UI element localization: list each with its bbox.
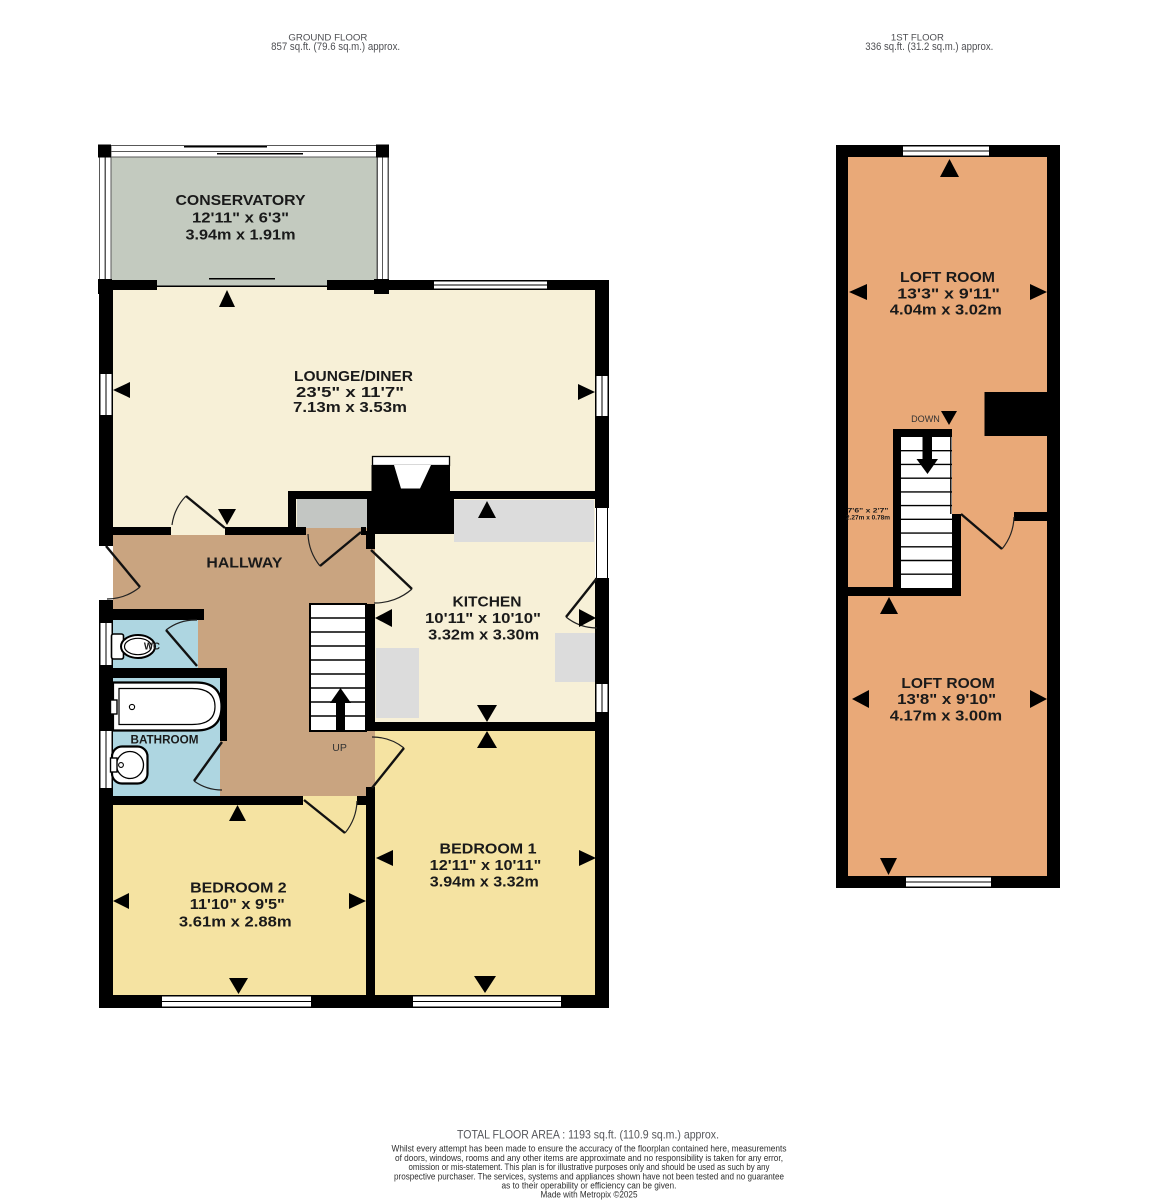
svg-text:3.94m x 1.91m: 3.94m x 1.91m — [186, 227, 296, 244]
svg-text:12'11" x 6'3": 12'11" x 6'3" — [192, 210, 289, 227]
svg-text:12'11" x 10'11": 12'11" x 10'11" — [430, 857, 542, 874]
svg-text:7.13m x 3.53m: 7.13m x 3.53m — [293, 399, 407, 416]
svg-text:11'10" x 9'5": 11'10" x 9'5" — [190, 896, 285, 913]
svg-text:3.61m x 2.88m: 3.61m x 2.88m — [179, 913, 292, 930]
svg-text:LOFT ROOM: LOFT ROOM — [901, 675, 994, 692]
svg-text:WC: WC — [144, 642, 160, 653]
svg-text:10'11" x 10'10": 10'11" x 10'10" — [425, 610, 541, 627]
svg-text:KITCHEN: KITCHEN — [453, 594, 522, 611]
svg-text:DOWN: DOWN — [911, 414, 940, 425]
svg-text:4.17m x 3.00m: 4.17m x 3.00m — [890, 707, 1002, 724]
svg-text:Made with Metropix ©2025: Made with Metropix ©2025 — [541, 1190, 638, 1200]
svg-text:13'8" x 9'10": 13'8" x 9'10" — [897, 691, 996, 708]
svg-text:336 sq.ft. (31.2 sq.m.) approx: 336 sq.ft. (31.2 sq.m.) approx. — [865, 41, 993, 53]
svg-text:BATHROOM: BATHROOM — [131, 733, 199, 747]
svg-text:3.94m x 3.32m: 3.94m x 3.32m — [430, 874, 539, 891]
svg-text:4.04m x 3.02m: 4.04m x 3.02m — [890, 302, 1002, 319]
svg-text:TOTAL FLOOR AREA : 1193 sq.ft.: TOTAL FLOOR AREA : 1193 sq.ft. (110.9 sq… — [457, 1128, 719, 1142]
svg-text:HALLWAY: HALLWAY — [206, 555, 282, 572]
svg-text:BEDROOM 2: BEDROOM 2 — [190, 879, 287, 896]
svg-text:LOFT ROOM: LOFT ROOM — [900, 269, 995, 286]
svg-text:BEDROOM 1: BEDROOM 1 — [440, 840, 537, 857]
svg-text:LOUNGE/DINER: LOUNGE/DINER — [294, 368, 413, 385]
svg-text:2.27m x 0.78m: 2.27m x 0.78m — [846, 515, 890, 522]
svg-text:CONSERVATORY: CONSERVATORY — [176, 192, 306, 209]
svg-text:3.32m x 3.30m: 3.32m x 3.30m — [428, 627, 539, 644]
svg-text:857 sq.ft. (79.6 sq.m.) approx: 857 sq.ft. (79.6 sq.m.) approx. — [271, 41, 400, 53]
svg-text:UP: UP — [332, 742, 347, 754]
svg-text:7'6" x 2'7": 7'6" x 2'7" — [848, 508, 889, 515]
svg-text:13'3" x 9'11": 13'3" x 9'11" — [897, 286, 1000, 303]
